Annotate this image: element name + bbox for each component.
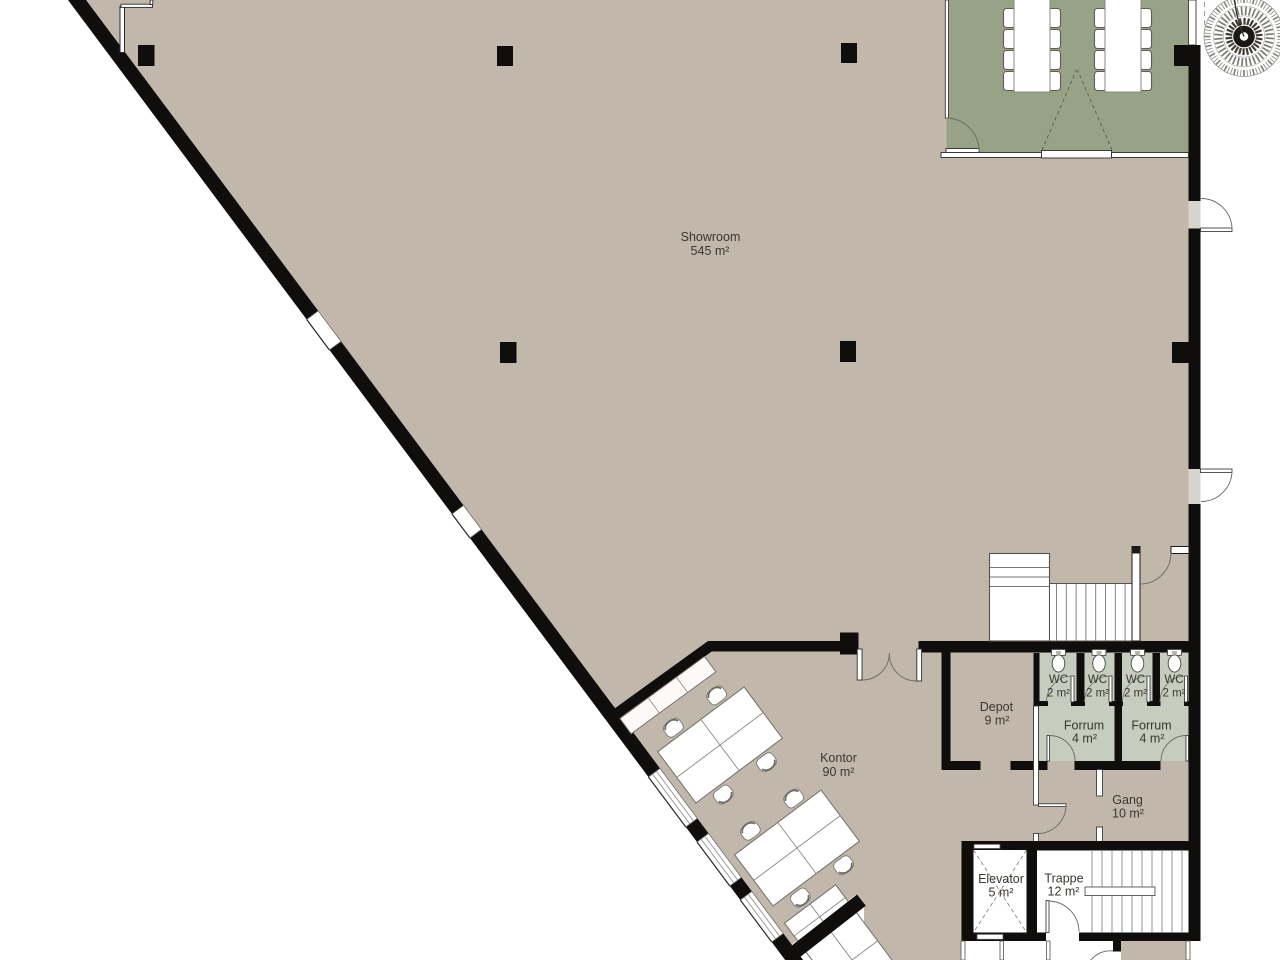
- svg-text:Showroom: Showroom: [681, 230, 741, 244]
- svg-text:WC: WC: [1088, 674, 1107, 686]
- svg-text:WC: WC: [1164, 674, 1183, 686]
- svg-text:Trappe: Trappe: [1044, 871, 1083, 885]
- svg-text:Forrum: Forrum: [1131, 719, 1171, 733]
- svg-text:10 m²: 10 m²: [1112, 806, 1144, 820]
- svg-text:Depot: Depot: [980, 700, 1014, 714]
- svg-text:5 m²: 5 m²: [989, 886, 1014, 900]
- svg-text:9 m²: 9 m²: [985, 713, 1010, 727]
- svg-text:Gang: Gang: [1112, 793, 1143, 807]
- svg-text:2 m²: 2 m²: [1086, 688, 1109, 700]
- svg-text:4 m²: 4 m²: [1140, 732, 1165, 746]
- svg-text:90 m²: 90 m²: [823, 765, 855, 779]
- svg-text:545 m²: 545 m²: [691, 244, 730, 258]
- svg-text:Elevator: Elevator: [978, 872, 1024, 886]
- svg-text:Kontor: Kontor: [820, 751, 857, 765]
- svg-text:12 m²: 12 m²: [1048, 885, 1080, 899]
- svg-text:WC: WC: [1126, 674, 1145, 686]
- svg-text:WC: WC: [1049, 674, 1068, 686]
- svg-text:2 m²: 2 m²: [1047, 688, 1070, 700]
- svg-text:Forrum: Forrum: [1064, 719, 1104, 733]
- svg-text:4 m²: 4 m²: [1072, 732, 1097, 746]
- svg-text:2 m²: 2 m²: [1163, 688, 1186, 700]
- svg-text:2 m²: 2 m²: [1124, 688, 1147, 700]
